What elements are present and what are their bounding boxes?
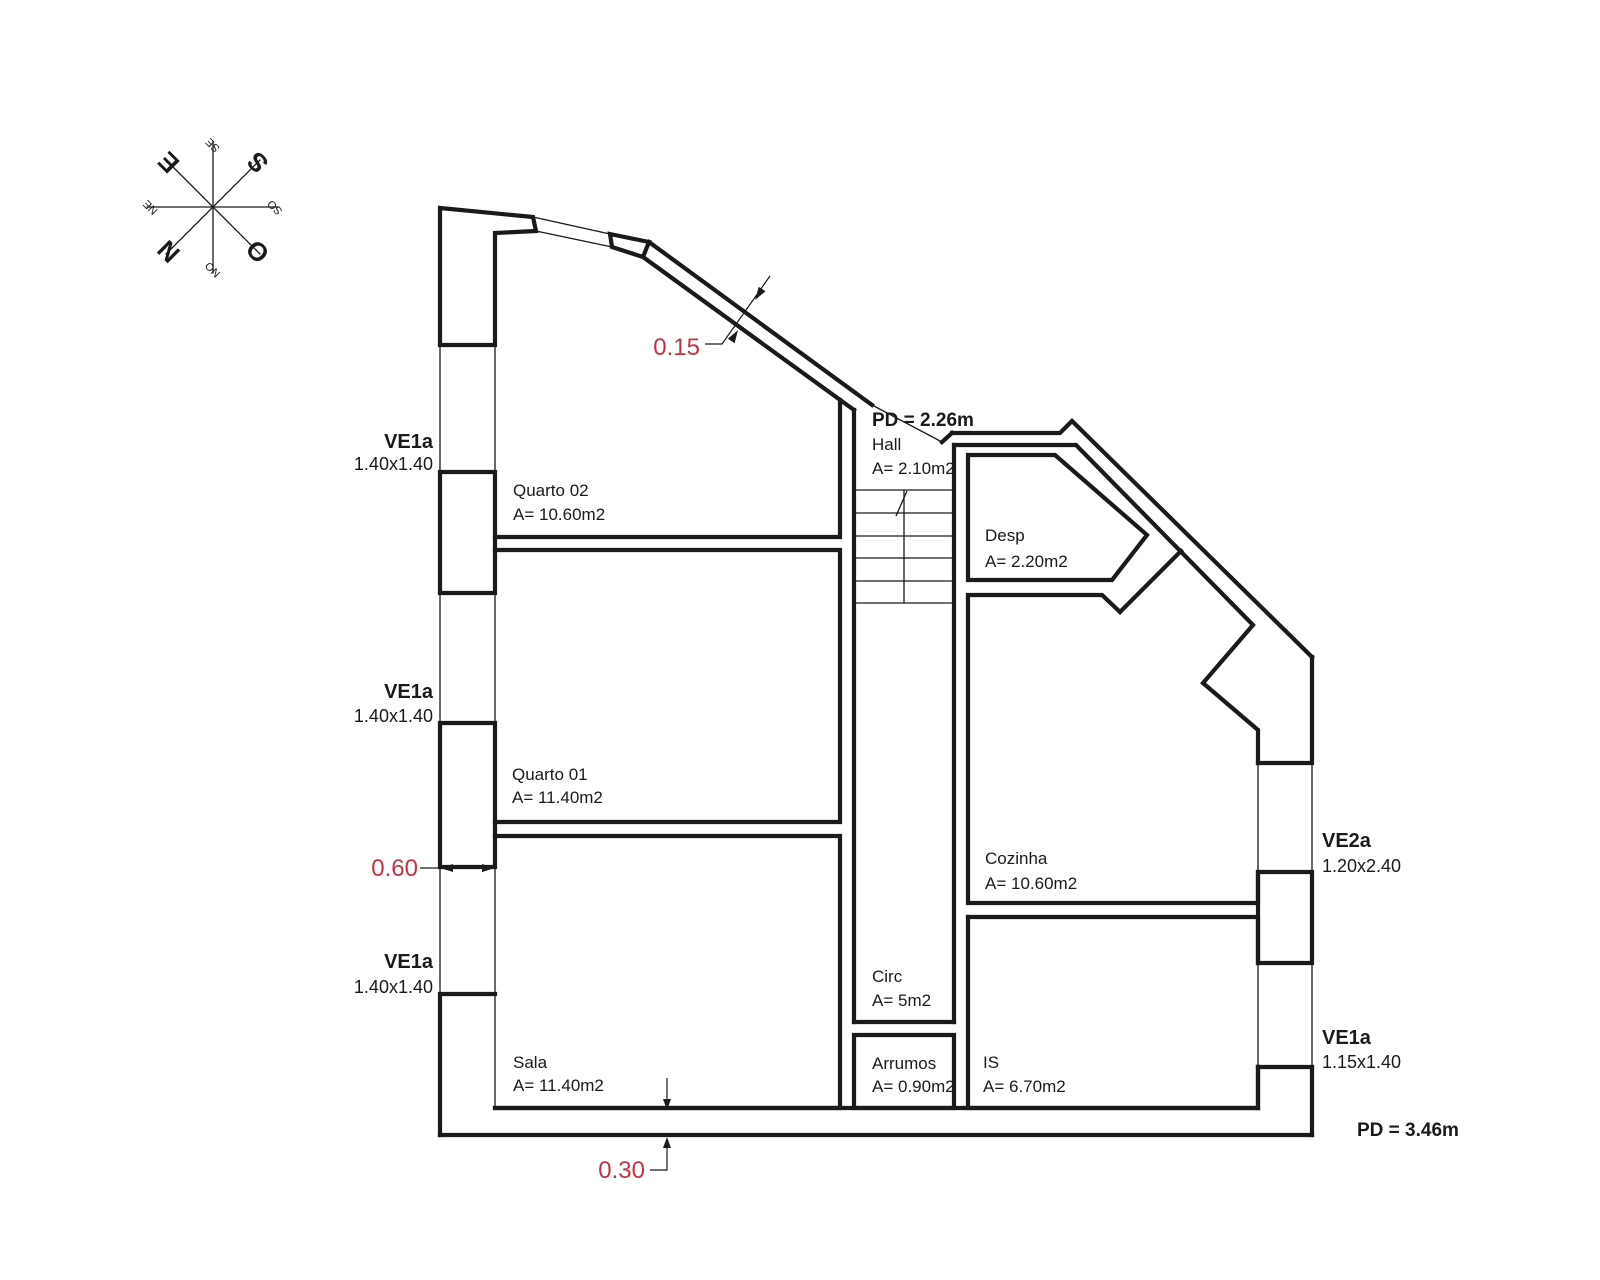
wall-block-top-small <box>610 234 649 257</box>
room-label-is: IS <box>983 1053 999 1072</box>
room-labels: Quarto 02 A= 10.60m2 Quarto 01 A= 11.40m… <box>512 410 1077 1096</box>
top-window-outer-line <box>533 217 610 234</box>
room-area-hall: A= 2.10m2 <box>872 459 955 478</box>
room-label-cozinha: Cozinha <box>985 849 1048 868</box>
compass-label-ne: NE <box>141 197 160 216</box>
room-is-outline-top <box>968 917 1258 963</box>
staircase <box>854 490 954 603</box>
floor-plan-drawing: N S E O NE SE SO NO <box>0 0 1600 1280</box>
room-label-quarto01: Quarto 01 <box>512 765 588 784</box>
right-wall-block-mid <box>1258 872 1312 963</box>
stair-direction-mark <box>896 491 907 516</box>
room-area-arrumos: A= 0.90m2 <box>872 1077 955 1096</box>
room-area-circ: A= 5m2 <box>872 991 931 1010</box>
dim-015-arrow-upper <box>755 287 766 300</box>
dim-030-arrow-up <box>663 1137 671 1148</box>
window-code-left-1: VE1a <box>384 431 434 453</box>
top-window-inner-line <box>536 231 612 247</box>
room-label-hall: Hall <box>872 435 901 454</box>
window-size-left-1: 1.40x1.40 <box>354 454 433 474</box>
wall-block-top-left-corner <box>440 208 536 345</box>
wall-block-left-3 <box>440 723 495 867</box>
window-code-right-1: VE2a <box>1322 830 1372 852</box>
room-label-quarto02: Quarto 02 <box>513 481 589 500</box>
right-corner-block-outer <box>1258 657 1312 763</box>
dim-text-bottom-wall: 0.30 <box>598 1157 645 1184</box>
room-area-cozinha: A= 10.60m2 <box>985 874 1077 893</box>
room-area-desp: A= 2.20m2 <box>985 552 1068 571</box>
room-area-sala: A= 11.40m2 <box>513 1076 604 1095</box>
compass-label-so: SO <box>265 197 285 217</box>
room-area-is: A= 6.70m2 <box>983 1077 1066 1096</box>
window-size-left-3: 1.40x1.40 <box>354 977 433 997</box>
hall-ceiling-height: PD = 2.26m <box>872 410 974 431</box>
window-size-right-1: 1.20x2.40 <box>1322 856 1401 876</box>
wall-block-left-bottom <box>440 994 495 1135</box>
dim-text-left-wall: 0.60 <box>371 855 418 882</box>
roof-wall-outer-diagonal <box>649 242 872 405</box>
room-label-sala: Sala <box>513 1053 548 1072</box>
room-label-arrumos: Arrumos <box>872 1054 936 1073</box>
room-label-desp: Desp <box>985 526 1025 545</box>
window-size-left-2: 1.40x1.40 <box>354 706 433 726</box>
dim-text-roof-wall: 0.15 <box>653 334 700 361</box>
room-area-quarto02: A= 10.60m2 <box>513 505 605 524</box>
compass-label-se: SE <box>204 135 223 154</box>
compass-rose: N S E O NE SE SO NO <box>107 101 320 314</box>
window-size-right-2: 1.15x1.40 <box>1322 1052 1401 1072</box>
compass-label-no: NO <box>203 259 223 279</box>
main-ceiling-height: PD = 3.46m <box>1357 1120 1459 1141</box>
room-area-quarto01: A= 11.40m2 <box>512 788 603 807</box>
room-label-circ: Circ <box>872 967 903 986</box>
window-code-left-3: VE1a <box>384 951 434 973</box>
window-code-right-2: VE1a <box>1322 1027 1372 1049</box>
window-code-left-2: VE1a <box>384 681 434 703</box>
wall-block-left-2 <box>440 472 495 593</box>
top-band-inner <box>954 445 1258 763</box>
dim-015-arrow-lower <box>728 330 738 343</box>
